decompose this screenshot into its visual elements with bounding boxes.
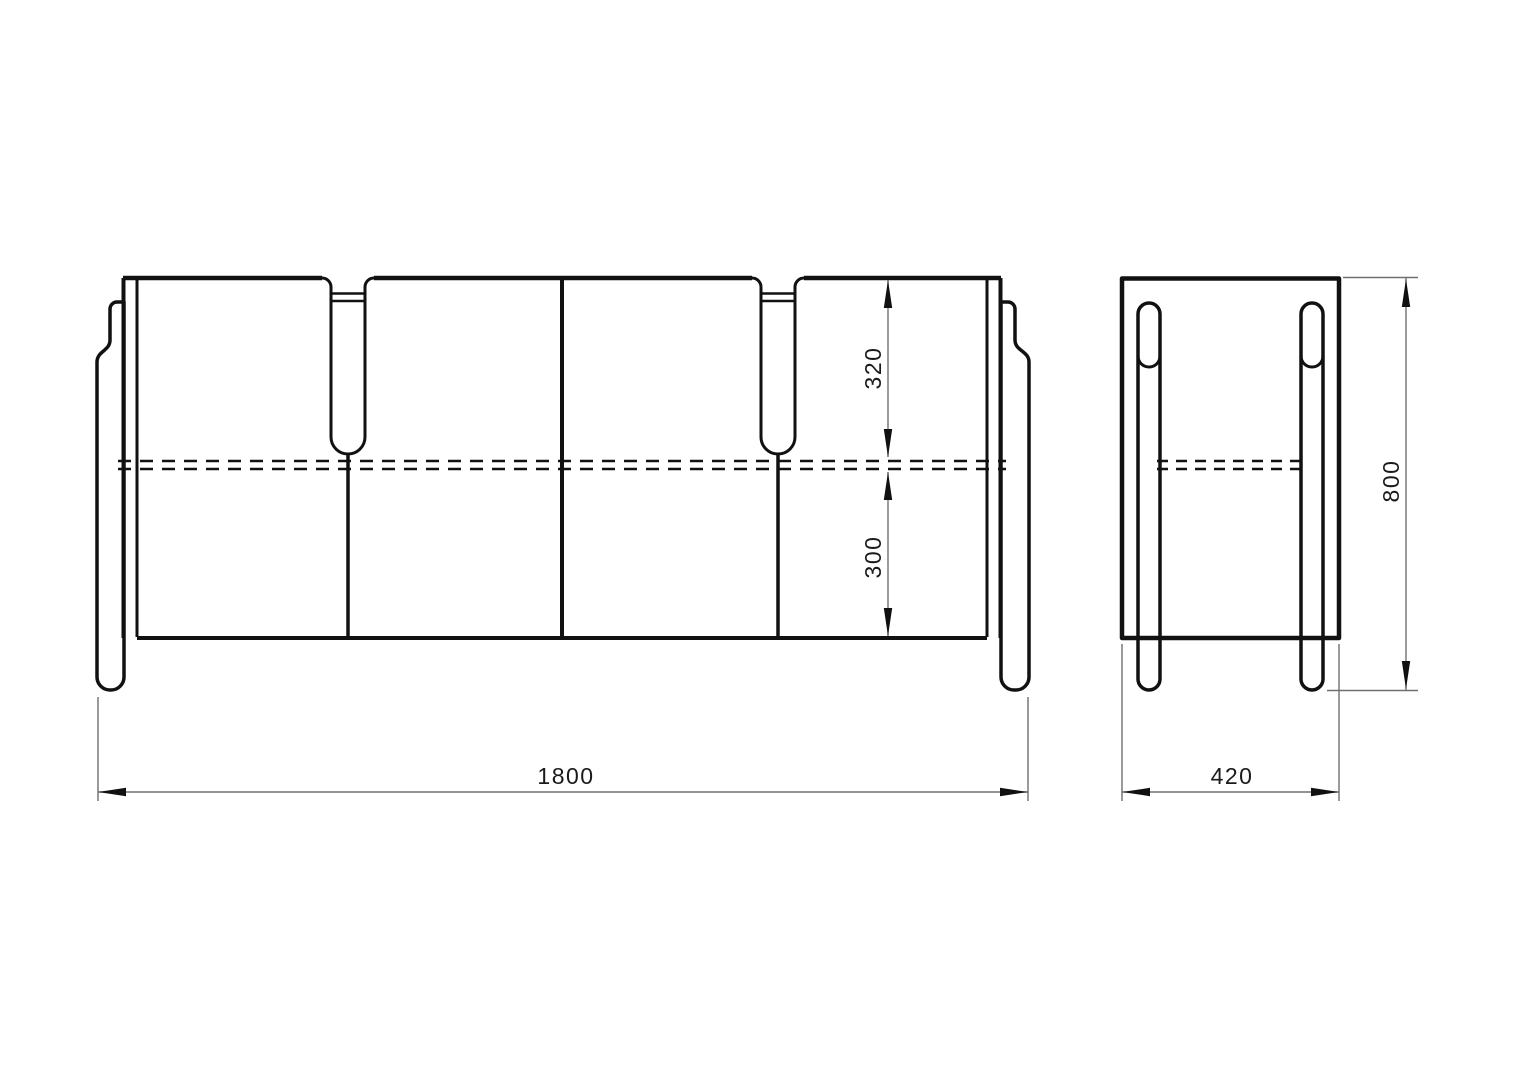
handle-slot-left [322,278,374,454]
dim-lower-arrow-bottom [884,608,892,636]
side-body [1122,279,1339,639]
dim-depth-label: 420 [1211,763,1254,789]
dim-width-label: 1800 [537,763,594,789]
dimensions: 1800 420 800 320 [98,278,1418,802]
handle-slot-right [752,278,804,454]
dim-upper-arrow-top [884,280,892,308]
dim-width: 1800 [98,697,1028,801]
dim-lower-label: 300 [860,536,886,579]
dim-lower-arrow-top [884,472,892,500]
side-left-leg-step-arc [1138,356,1160,367]
side-shelf-dashed-line [1157,461,1303,469]
dim-height-arrow-top [1402,279,1410,307]
side-view [1122,279,1339,691]
dim-upper-section: 320 [860,280,892,457]
dim-depth-arrow-right [1311,788,1339,796]
cabinet-technical-drawing: 1800 420 800 320 [0,0,1521,1080]
side-right-leg-step-arc [1301,356,1323,367]
drawing-canvas: 1800 420 800 320 [0,0,1521,1080]
front-left-leg [97,302,124,690]
handle-slot-left-top-panel-lines [331,294,365,302]
dim-height-label: 800 [1378,460,1404,503]
dim-height-arrow-bottom [1402,661,1410,689]
side-left-leg [1138,303,1160,690]
dim-upper-label: 320 [860,347,886,390]
dim-lower-section: 300 [860,472,892,636]
side-right-leg [1301,303,1323,690]
dim-upper-arrow-bottom [884,429,892,457]
dim-width-arrow-left [98,788,126,796]
dim-width-arrow-right [1000,788,1028,796]
dim-depth: 420 [1122,644,1339,801]
handle-slot-right-top-panel-lines [761,294,795,302]
dim-depth-arrow-left [1122,788,1150,796]
front-right-leg [1001,302,1029,690]
